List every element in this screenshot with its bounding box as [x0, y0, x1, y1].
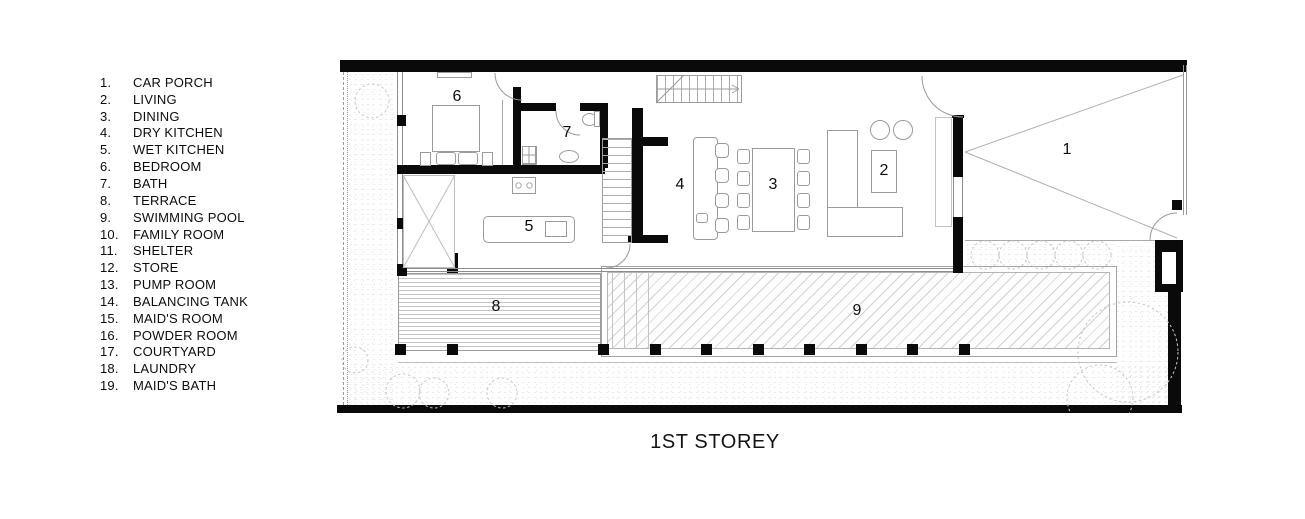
legend-label: TERRACE: [133, 193, 197, 208]
legend-num: 11.: [100, 243, 133, 258]
shrub: [1083, 241, 1111, 269]
shrub: [971, 241, 999, 269]
legend-label: PUMP ROOM: [133, 277, 216, 292]
sheet-title: 1ST STOREY: [650, 431, 780, 454]
legend-item: 3.DINING: [100, 108, 248, 125]
legend-num: 4.: [100, 125, 133, 140]
room-label-bath: 7: [563, 124, 572, 142]
room-label-living: 2: [880, 162, 889, 180]
legend-label: STORE: [133, 260, 179, 275]
legend-label: MAID'S ROOM: [133, 311, 223, 326]
legend-item: 10.FAMILY ROOM: [100, 226, 248, 243]
legend-label: POWDER ROOM: [133, 328, 238, 343]
shrub: [355, 84, 389, 118]
legend-num: 8.: [100, 193, 133, 208]
legend-label: LAUNDRY: [133, 361, 196, 376]
room-label-dining: 3: [769, 176, 778, 194]
legend-item: 8.TERRACE: [100, 192, 248, 209]
legend-num: 6.: [100, 159, 133, 174]
legend-label: WET KITCHEN: [133, 142, 225, 157]
legend-label: DINING: [133, 109, 180, 124]
legend-num: 2.: [100, 92, 133, 107]
legend-num: 9.: [100, 210, 133, 225]
room-label-bedroom: 6: [453, 88, 462, 106]
legend-num: 7.: [100, 176, 133, 191]
legend-item: 16.POWDER ROOM: [100, 327, 248, 344]
legend-label: BEDROOM: [133, 159, 202, 174]
shrub: [1027, 241, 1055, 269]
legend-item: 4.DRY KITCHEN: [100, 125, 248, 142]
legend-num: 14.: [100, 294, 133, 309]
legend-item: 2.LIVING: [100, 91, 248, 108]
legend-item: 5.WET KITCHEN: [100, 141, 248, 158]
legend-label: BALANCING TANK: [133, 294, 248, 309]
stair-direction-lines: [656, 75, 739, 103]
door-swing-arcs: [495, 73, 1177, 268]
stair-exit-door-arc: [606, 244, 630, 268]
legend-num: 18.: [100, 361, 133, 376]
legend-item: 17.COURTYARD: [100, 344, 248, 361]
legend-item: 9.SWIMMING POOL: [100, 209, 248, 226]
legend-item: 19.MAID'S BATH: [100, 377, 248, 394]
legend-item: 11.SHELTER: [100, 242, 248, 259]
plan-linework: [337, 60, 1187, 413]
legend-item: 14.BALANCING TANK: [100, 293, 248, 310]
legend-num: 16.: [100, 328, 133, 343]
floor-plan-sheet: 1.CAR PORCH 2.LIVING 3.DINING 4.DRY KITC…: [0, 0, 1305, 519]
void-x-marks: [403, 175, 455, 268]
legend-item: 13.PUMP ROOM: [100, 276, 248, 293]
legend-label: SWIMMING POOL: [133, 210, 245, 225]
shrub: [342, 347, 368, 373]
legend-label: CAR PORCH: [133, 75, 213, 90]
room-label-dry-kitchen: 4: [676, 176, 685, 194]
legend-item: 12.STORE: [100, 259, 248, 276]
shrub: [999, 241, 1027, 269]
room-label-car-porch: 1: [1063, 141, 1072, 159]
legend-label: COURTYARD: [133, 344, 216, 359]
legend-item: 18.LAUNDRY: [100, 360, 248, 377]
room-label-swimming-pool: 9: [853, 302, 862, 320]
tree: [1067, 365, 1133, 413]
legend-label: SHELTER: [133, 243, 193, 258]
legend-num: 19.: [100, 378, 133, 393]
car-porch-markings: [965, 75, 1183, 238]
legend-num: 1.: [100, 75, 133, 90]
shrub: [487, 378, 517, 408]
room-label-wet-kitchen: 5: [525, 218, 534, 236]
legend-num: 10.: [100, 227, 133, 242]
legend-item: 6.BEDROOM: [100, 158, 248, 175]
shrub: [419, 378, 449, 408]
legend-num: 5.: [100, 142, 133, 157]
floor-plan: 1 2 3 4 5 6 7 8 9: [337, 60, 1187, 413]
legend-item: 7.BATH: [100, 175, 248, 192]
legend-label: DRY KITCHEN: [133, 125, 223, 140]
legend-num: 13.: [100, 277, 133, 292]
shrub: [1055, 241, 1083, 269]
legend: 1.CAR PORCH 2.LIVING 3.DINING 4.DRY KITC…: [100, 74, 248, 394]
legend-num: 17.: [100, 344, 133, 359]
legend-label: FAMILY ROOM: [133, 227, 224, 242]
trees-and-shrubs: [342, 84, 1178, 413]
legend-label: BATH: [133, 176, 168, 191]
legend-label: LIVING: [133, 92, 177, 107]
shrub: [386, 374, 420, 408]
room-label-terrace: 8: [492, 298, 501, 316]
bedroom-door-arc: [495, 73, 522, 100]
legend-num: 12.: [100, 260, 133, 275]
legend-item: 1.CAR PORCH: [100, 74, 248, 91]
legend-num: 15.: [100, 311, 133, 326]
legend-num: 3.: [100, 109, 133, 124]
entry-door-arc: [922, 76, 963, 117]
legend-item: 15.MAID'S ROOM: [100, 310, 248, 327]
legend-label: MAID'S BATH: [133, 378, 216, 393]
tree: [1078, 302, 1178, 402]
